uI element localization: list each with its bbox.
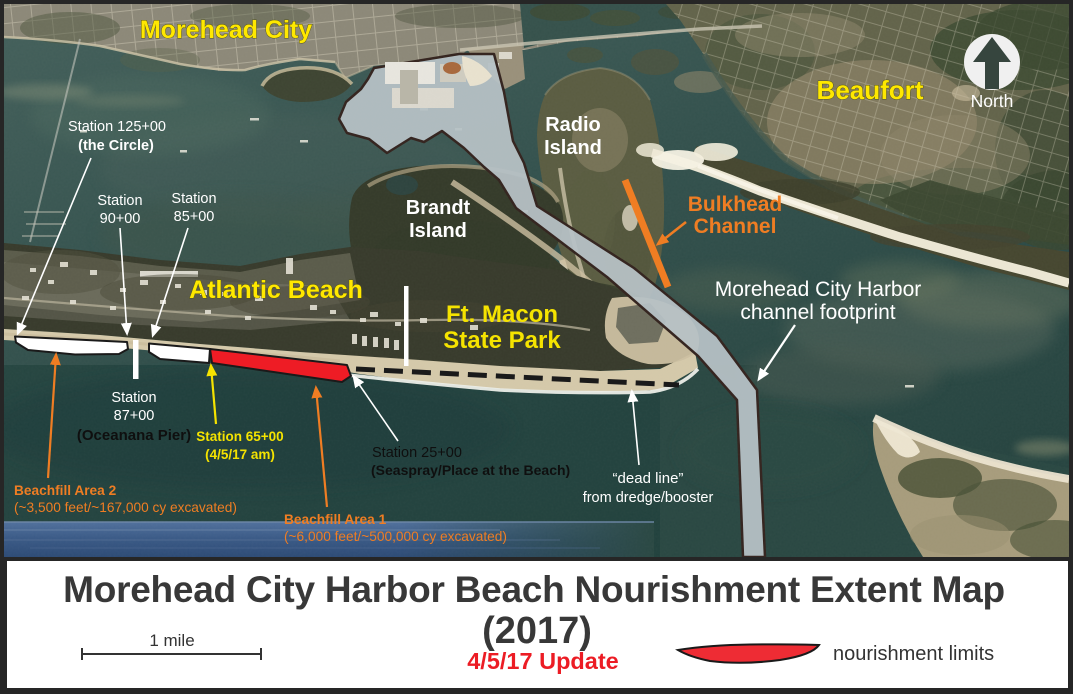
svg-text:Station 25+00: Station 25+00 <box>372 445 462 461</box>
svg-text:Station: Station <box>171 191 216 207</box>
svg-text:Station 65+00: Station 65+00 <box>196 429 283 444</box>
svg-text:Station 125+00: Station 125+00 <box>68 119 166 135</box>
svg-text:Morehead City: Morehead City <box>140 16 312 44</box>
svg-text:Bulkhead: Bulkhead <box>688 193 783 216</box>
svg-text:channel footprint: channel footprint <box>740 301 895 324</box>
svg-text:Atlantic Beach: Atlantic Beach <box>189 276 363 304</box>
svg-text:Island: Island <box>544 137 602 159</box>
svg-text:North: North <box>971 91 1014 111</box>
svg-text:(the Circle): (the Circle) <box>78 138 154 154</box>
svg-text:87+00: 87+00 <box>114 408 155 424</box>
svg-text:Station: Station <box>97 193 142 209</box>
svg-text:90+00: 90+00 <box>100 211 141 227</box>
svg-text:Station: Station <box>111 390 156 406</box>
svg-text:nourishment limits: nourishment limits <box>833 643 994 665</box>
svg-text:Beaufort: Beaufort <box>817 75 924 105</box>
svg-text:(~6,000 feet/~500,000 cy excav: (~6,000 feet/~500,000 cy excavated) <box>284 529 507 544</box>
svg-text:(2017): (2017) <box>482 610 592 652</box>
svg-text:Channel: Channel <box>694 215 777 238</box>
svg-text:Morehead City Harbor: Morehead City Harbor <box>715 278 922 301</box>
svg-text:85+00: 85+00 <box>174 209 215 225</box>
svg-text:Beachfill Area 1: Beachfill Area 1 <box>284 512 387 527</box>
svg-text:4/5/17 Update: 4/5/17 Update <box>467 648 619 674</box>
svg-text:Radio: Radio <box>545 114 601 136</box>
svg-text:Island: Island <box>409 220 467 242</box>
svg-text:(Oceanana Pier): (Oceanana Pier) <box>77 427 191 444</box>
svg-text:1 mile: 1 mile <box>149 631 194 650</box>
svg-text:Beachfill Area 2: Beachfill Area 2 <box>14 483 117 498</box>
svg-text:State Park: State Park <box>443 327 561 354</box>
svg-text:(Seaspray/Place at the Beach): (Seaspray/Place at the Beach) <box>371 462 570 478</box>
svg-text:Morehead City Harbor Beach Nou: Morehead City Harbor Beach Nourishment E… <box>63 569 1005 610</box>
svg-text:(4/5/17 am): (4/5/17 am) <box>205 447 275 462</box>
svg-text:Brandt: Brandt <box>406 197 471 219</box>
svg-text:from dredge/booster: from dredge/booster <box>583 490 714 506</box>
svg-text:“dead line”: “dead line” <box>613 470 684 487</box>
svg-text:Ft. Macon: Ft. Macon <box>446 301 558 328</box>
svg-text:(~3,500 feet/~167,000 cy excav: (~3,500 feet/~167,000 cy excavated) <box>14 500 237 515</box>
